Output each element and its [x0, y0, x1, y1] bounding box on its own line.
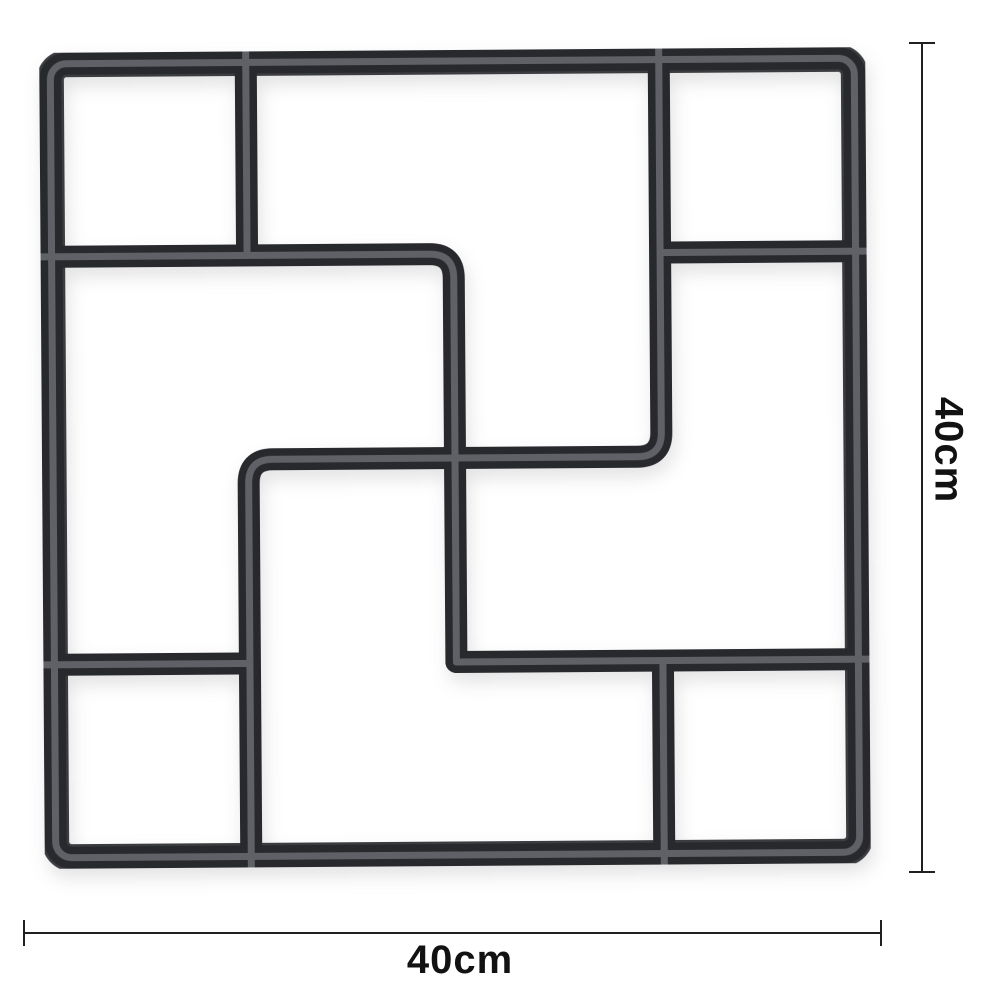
mold-wall-trough-top-left-divider	[246, 51, 247, 255]
mold-wall-trough-bottom-left-shelf	[43, 663, 249, 664]
height-dimension-tick-bottom	[909, 871, 935, 873]
mold-wall-trough-top-right-shelf	[660, 251, 866, 252]
mold-wall-trough-bottom-right-divider	[663, 661, 664, 865]
height-dimension-label: 40cm	[926, 397, 971, 503]
width-dimension-tick-left	[23, 920, 25, 946]
paving-mold-photo	[39, 47, 871, 869]
mold-wall-trough-center-zigzag-divider	[246, 49, 665, 868]
width-dimension-label: 40cm	[407, 938, 513, 983]
product-image-stage: 40cm 40cm	[0, 0, 1000, 1000]
height-dimension-line	[921, 43, 923, 873]
height-dimension-tick-top	[909, 42, 935, 44]
width-dimension-tick-right	[880, 920, 882, 946]
width-dimension-line	[24, 932, 882, 934]
